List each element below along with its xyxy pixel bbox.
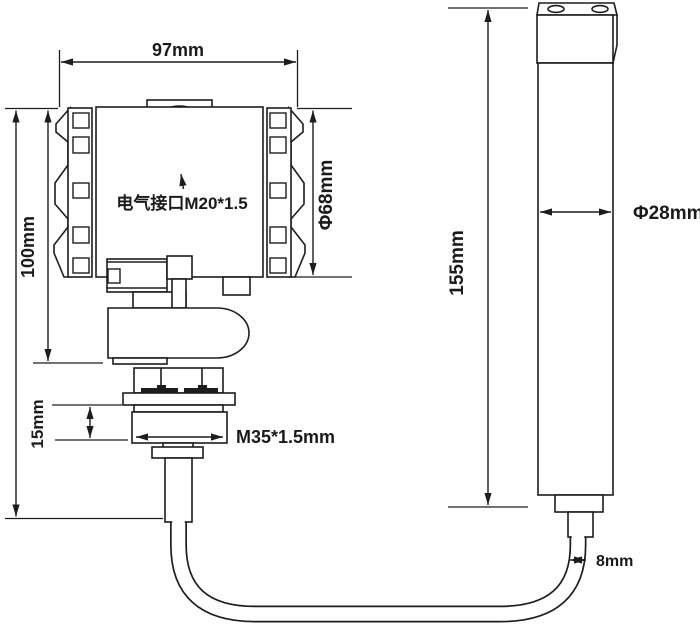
dim-phi68-label: Φ68mm — [316, 160, 337, 231]
dim-8mm-label: 8mm — [596, 553, 633, 570]
housing-body — [96, 107, 263, 277]
hex-nut — [134, 368, 223, 393]
mounting-flange — [123, 393, 235, 412]
dim-phi28-label: Φ28mm — [633, 203, 700, 224]
left-cover — [54, 108, 92, 277]
dim-100mm-label: 100mm — [18, 216, 38, 278]
cable — [179, 498, 579, 614]
cable-gland — [152, 447, 203, 525]
thread-spec-label: M35*1.5mm — [236, 427, 335, 447]
probe-drawing — [537, 3, 617, 540]
dim-155mm: 155mm — [447, 8, 528, 507]
probe-top-cap — [537, 3, 617, 63]
probe-body — [538, 63, 613, 495]
sensor-body — [108, 308, 249, 364]
dim-97mm-label: 97mm — [152, 40, 204, 60]
dim-155mm-label: 155mm — [447, 230, 468, 296]
conduit-port-label: 电气接口M20*1.5 — [116, 193, 247, 213]
technical-drawing-canvas: 97mm 100mm Φ68mm 电气接口M20*1.5 15mm M35*1.… — [0, 0, 700, 629]
dim-15mm-label: 15mm — [28, 399, 47, 448]
right-cover — [267, 108, 305, 277]
dim-15mm: 15mm — [28, 399, 128, 448]
dim-97mm: 97mm — [60, 40, 298, 107]
dimension-drawing-svg: 97mm 100mm Φ68mm 电气接口M20*1.5 15mm M35*1.… — [0, 0, 700, 629]
thread-section — [132, 412, 227, 448]
probe-neck — [555, 495, 603, 540]
